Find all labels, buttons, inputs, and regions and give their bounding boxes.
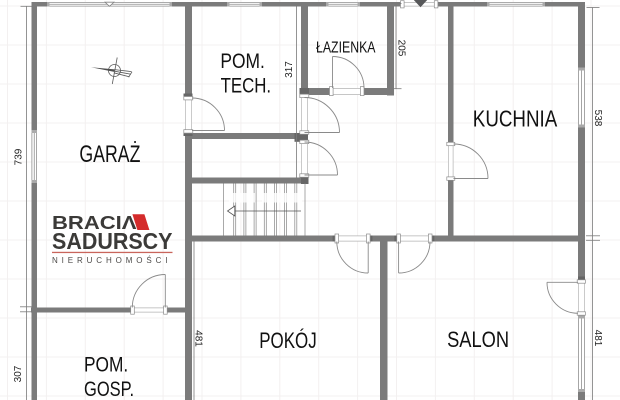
svg-text:538: 538 bbox=[592, 110, 603, 127]
svg-text:POM.: POM. bbox=[84, 351, 128, 376]
svg-text:GOSP.: GOSP. bbox=[84, 376, 134, 400]
svg-text:GARAŻ: GARAŻ bbox=[79, 141, 140, 168]
svg-text:739: 739 bbox=[14, 148, 25, 165]
svg-text:317: 317 bbox=[284, 61, 295, 78]
svg-text:205: 205 bbox=[395, 40, 406, 57]
svg-text:307: 307 bbox=[13, 365, 24, 382]
svg-text:481: 481 bbox=[592, 330, 603, 347]
svg-text:NIERUCHOMOŚCI: NIERUCHOMOŚCI bbox=[52, 256, 171, 265]
svg-text:SALON: SALON bbox=[447, 327, 509, 352]
svg-text:POKÓJ: POKÓJ bbox=[259, 328, 317, 353]
svg-text:TECH.: TECH. bbox=[221, 73, 272, 98]
svg-text:SADURSCY: SADURSCY bbox=[52, 228, 173, 254]
svg-text:481: 481 bbox=[192, 330, 203, 347]
svg-text:ŁAZIENKA: ŁAZIENKA bbox=[316, 39, 376, 56]
svg-text:KUCHNIA: KUCHNIA bbox=[473, 105, 558, 131]
svg-text:POM.: POM. bbox=[220, 48, 265, 73]
